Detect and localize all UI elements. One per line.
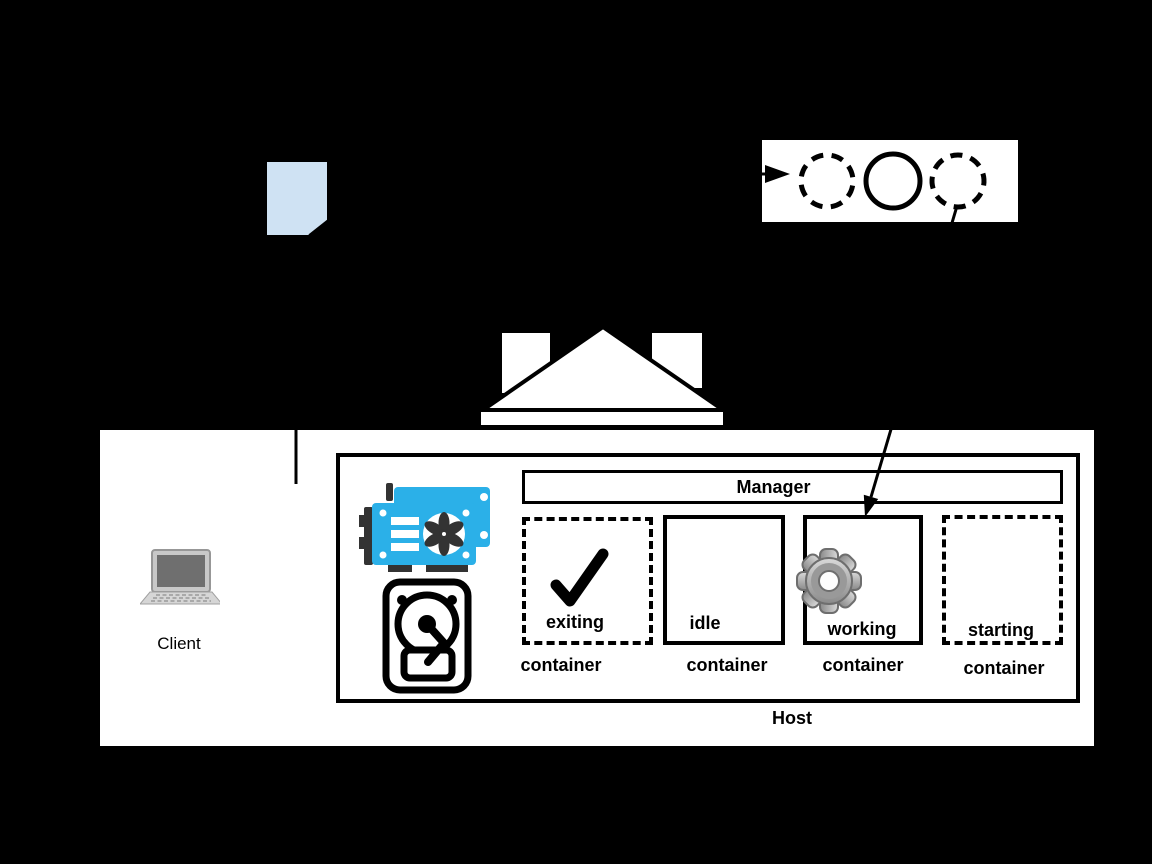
dashed-worker-circle-left bbox=[797, 151, 857, 211]
gpu-fin bbox=[391, 543, 419, 551]
gpu-fin bbox=[391, 530, 419, 538]
container-box-idle bbox=[663, 515, 785, 645]
incoming-arrowhead-icon bbox=[765, 165, 790, 183]
document-sheet bbox=[267, 162, 327, 235]
container-caption-3: container bbox=[822, 656, 903, 675]
bank-gateway-icon bbox=[478, 320, 728, 430]
check-icon bbox=[548, 548, 612, 612]
gpu-screw bbox=[380, 552, 387, 559]
worker-circles bbox=[762, 140, 1018, 222]
container-caption-2: container bbox=[686, 656, 767, 675]
working-label: working bbox=[827, 620, 896, 639]
laptop-icon bbox=[140, 547, 220, 607]
laptop-screen bbox=[157, 555, 205, 587]
gateway-base bbox=[481, 412, 723, 425]
host-label: Host bbox=[772, 709, 812, 728]
gpu-screw bbox=[380, 510, 387, 517]
client-label: Client bbox=[157, 635, 200, 653]
idle-label: idle bbox=[689, 614, 720, 633]
diagram-canvas: Manager exiting idle working starting co… bbox=[0, 0, 1152, 864]
starting-label: starting bbox=[968, 621, 1034, 640]
gpu-bracket-notch bbox=[359, 515, 366, 527]
solid-worker-circle bbox=[866, 154, 920, 208]
manager-label: Manager bbox=[736, 477, 810, 498]
gpu-icon bbox=[358, 481, 494, 575]
gear-hole bbox=[819, 571, 839, 591]
exiting-label: exiting bbox=[546, 613, 604, 632]
gpu-screw bbox=[463, 510, 470, 517]
gpu-connector bbox=[388, 565, 412, 572]
manager-box: Manager bbox=[522, 470, 1063, 504]
gpu-screw bbox=[463, 552, 470, 559]
container-caption-1: container bbox=[520, 656, 601, 675]
document-icon bbox=[265, 160, 335, 240]
container-caption-4: container bbox=[963, 659, 1044, 678]
gpu-screw bbox=[480, 493, 488, 501]
hdd-icon bbox=[378, 576, 474, 696]
gpu-bracket-top bbox=[386, 483, 393, 501]
gear-icon bbox=[794, 546, 864, 616]
gpu-connector bbox=[426, 565, 468, 572]
gpu-fin bbox=[391, 517, 419, 525]
gpu-screw bbox=[480, 531, 488, 539]
dashed-worker-circle-right bbox=[923, 146, 993, 216]
worker-queue-box bbox=[762, 140, 1018, 222]
gpu-bracket-notch bbox=[359, 537, 366, 549]
